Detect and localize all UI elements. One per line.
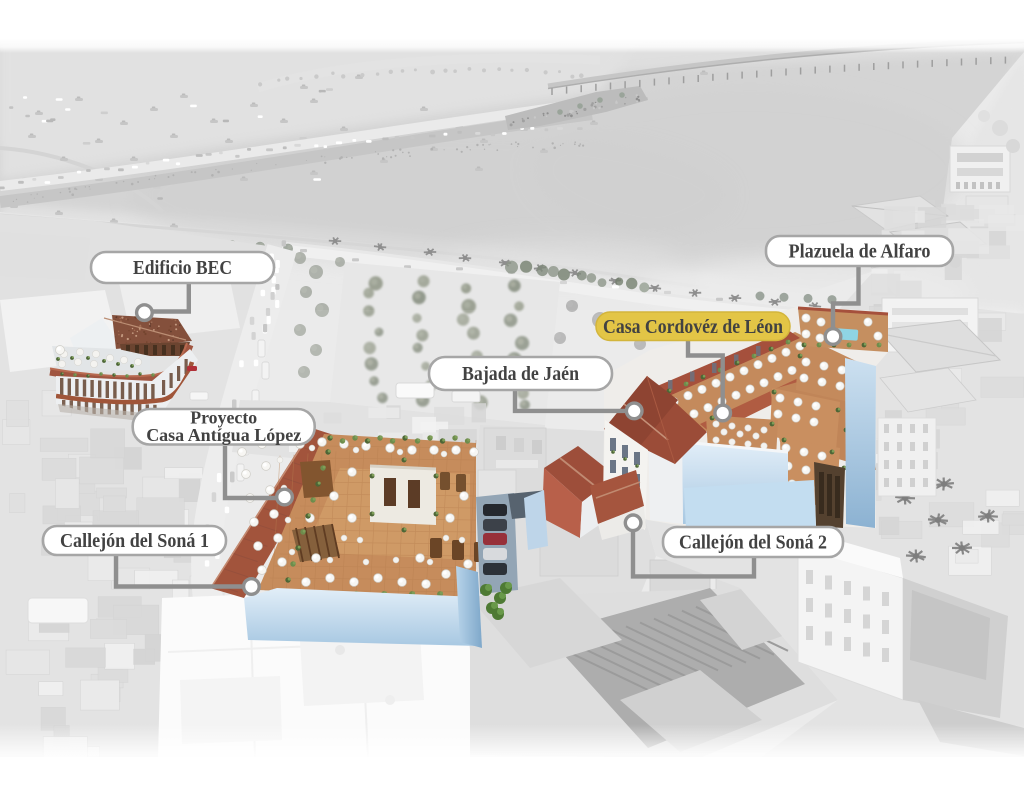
svg-text:Edificio BEC: Edificio BEC	[133, 257, 232, 279]
svg-text:Casa Antígua López: Casa Antígua López	[146, 425, 301, 445]
svg-text:Plazuela de Alfaro: Plazuela de Alfaro	[789, 241, 931, 263]
svg-text:Casa Cordovéz de Léon: Casa Cordovéz de Léon	[603, 316, 783, 338]
svg-text:Callejón del Soná 2: Callejón del Soná 2	[679, 532, 827, 554]
svg-text:Bajada de Jaén: Bajada de Jaén	[462, 363, 579, 385]
svg-text:Callejón del Soná 1: Callejón del Soná 1	[60, 530, 209, 552]
